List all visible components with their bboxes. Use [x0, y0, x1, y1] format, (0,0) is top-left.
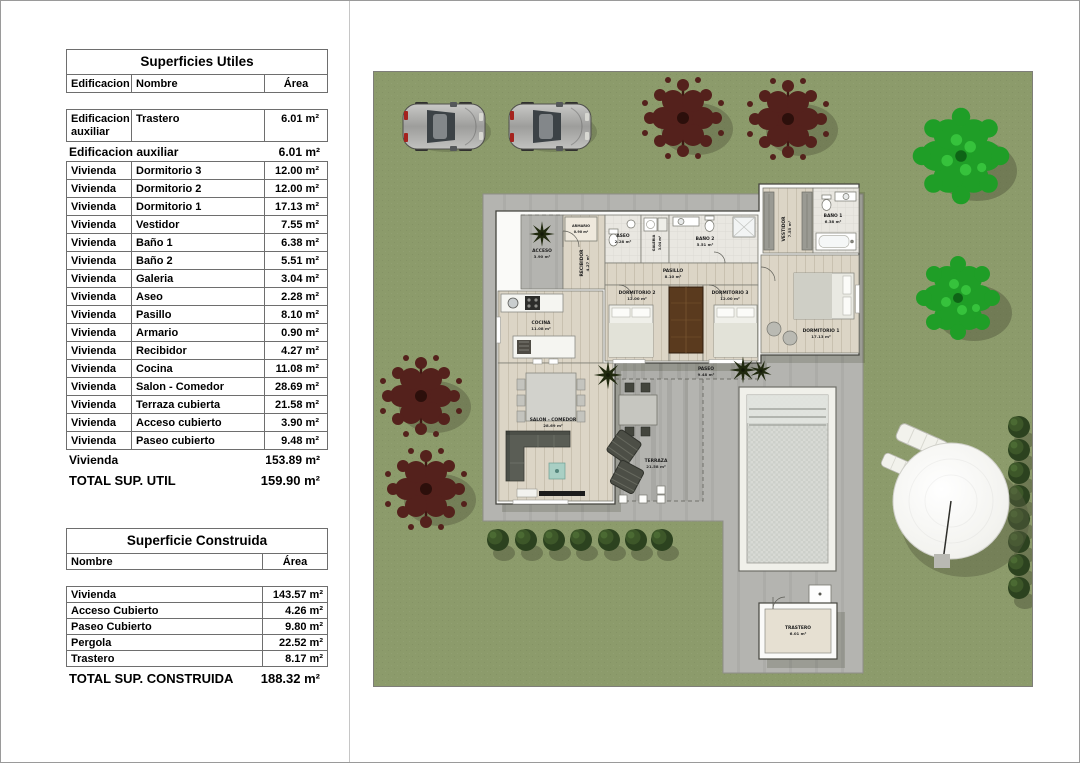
cell-nombre: Terraza cubierta — [132, 396, 265, 413]
room-area-trastero: 6.01 m² — [790, 631, 807, 636]
cell-nombre: Acceso Cubierto — [67, 603, 263, 618]
room-area-bano2: 5.51 m² — [697, 242, 714, 247]
cell-nombre: Salon - Comedor — [132, 378, 265, 395]
aux-subtotal-row: Edificacion auxiliar 6.01 m² — [66, 142, 328, 161]
cell-edificacion: Vivienda — [67, 234, 132, 251]
room-label-bano1: BAÑO 1 — [824, 212, 843, 219]
total-util-area: 159.90 m² — [261, 473, 320, 488]
table-row: Edificacion auxiliar Trastero 6.01 m² — [67, 110, 327, 141]
aux-building-table: Edificacion auxiliar Trastero 6.01 m² — [66, 109, 328, 142]
cell-area: 5.51 m² — [265, 252, 327, 269]
swimming-pool — [739, 387, 836, 571]
table-row: Pergola22.52 m² — [67, 634, 327, 650]
table-row: ViviendaGaleria3.04 m² — [67, 269, 327, 287]
cell-nombre: Baño 2 — [132, 252, 265, 269]
cell-edificacion: Vivienda — [67, 360, 132, 377]
cell-nombre: Vivienda — [67, 587, 263, 602]
room-area-dormitorio3: 12.00 m² — [720, 296, 740, 301]
total-construida-area: 188.32 m² — [261, 671, 320, 686]
cell-nombre: Trastero — [67, 651, 263, 666]
room-area-acceso: 3.90 m² — [534, 254, 551, 259]
car-icon — [403, 102, 491, 152]
built-surface-title: Superficie Construida — [66, 528, 328, 554]
page-background: Superficies Utiles Edificacion Nombre Ár… — [0, 0, 1080, 763]
cell-area: 28.69 m² — [265, 378, 327, 395]
cell-edificacion: Edificacion auxiliar — [67, 110, 132, 141]
bed-dormitorio2 — [609, 305, 653, 357]
cell-edificacion: Vivienda — [67, 378, 132, 395]
cell-nombre: Paseo cubierto — [132, 432, 265, 449]
cell-edificacion: Vivienda — [67, 162, 132, 179]
table-row: ViviendaArmario0.90 m² — [67, 323, 327, 341]
aux-subtotal-area: 6.01 m² — [279, 145, 320, 159]
built-surface-rows: Vivienda143.57 m² Acceso Cubierto4.26 m²… — [66, 586, 328, 667]
room-pasillo — [605, 263, 758, 285]
cell-area: 22.52 m² — [263, 635, 327, 650]
armchair-icon — [783, 331, 797, 345]
dining-table — [526, 373, 576, 421]
kitchen-sink — [508, 298, 518, 308]
cell-area: 0.90 m² — [265, 324, 327, 341]
outdoor-table — [619, 395, 657, 425]
cell-area: 21.58 m² — [265, 396, 327, 413]
cell-nombre: Pasillo — [132, 306, 265, 323]
armchair-icon — [767, 322, 781, 336]
cell-nombre: Vestidor — [132, 216, 265, 233]
cell-nombre: Baño 1 — [132, 234, 265, 251]
table-row: ViviendaVestidor7.55 m² — [67, 215, 327, 233]
useful-surfaces-title: Superficies Utiles — [66, 49, 328, 75]
cell-area: 6.38 m² — [265, 234, 327, 251]
stove — [525, 296, 540, 310]
room-area-cocina: 11.08 m² — [531, 326, 551, 331]
aux-subtotal-label: Edificacion auxiliar — [69, 145, 178, 159]
toilet-icon — [822, 200, 831, 211]
vivienda-subtotal-area: 153.89 m² — [265, 453, 320, 467]
room-area-pasillo: 8.10 m² — [665, 274, 682, 279]
cell-nombre: Recibidor — [132, 342, 265, 359]
col-nombre: Nombre — [67, 554, 263, 569]
table-row: ViviendaRecibidor4.27 m² — [67, 341, 327, 359]
col-nombre: Nombre — [132, 75, 265, 92]
agave-plant-icon — [529, 221, 555, 247]
site-plan: ACCESO 3.90 m² RECIBIDOR 4.27 m² ARMARIO… — [373, 71, 1033, 687]
agave-plant-icon — [730, 357, 757, 384]
table-row: ViviendaBaño 25.51 m² — [67, 251, 327, 269]
total-util-label: TOTAL SUP. UTIL — [69, 473, 176, 488]
cell-edificacion: Vivienda — [67, 270, 132, 287]
vivienda-subtotal-label: Vivienda — [69, 453, 118, 467]
table-row: ViviendaDormitorio 117.13 m² — [67, 197, 327, 215]
car-icon — [509, 102, 597, 152]
total-util-row: TOTAL SUP. UTIL 159.90 m² — [66, 469, 328, 490]
cell-edificacion: Vivienda — [67, 306, 132, 323]
table-row: ViviendaTerraza cubierta21.58 m² — [67, 395, 327, 413]
agave-plant-icon — [594, 361, 623, 390]
bed-dormitorio3 — [714, 305, 757, 357]
cell-edificacion: Vivienda — [67, 252, 132, 269]
room-label-galeria: GALERIA — [652, 234, 656, 251]
table-row: Vivienda143.57 m² — [67, 587, 327, 602]
cell-area: 17.13 m² — [265, 198, 327, 215]
room-area-galeria: 3.04 m² — [658, 235, 662, 250]
cell-nombre: Trastero — [132, 110, 265, 141]
cell-nombre: Armario — [132, 324, 265, 341]
room-label-bano2: BAÑO 2 — [696, 235, 715, 242]
cell-edificacion: Vivienda — [67, 432, 132, 449]
cell-area: 8.17 m² — [263, 651, 327, 666]
cell-edificacion: Vivienda — [67, 396, 132, 413]
room-area-aseo: 2.28 m² — [615, 239, 632, 244]
cell-area: 4.27 m² — [265, 342, 327, 359]
col-area: Área — [263, 554, 327, 569]
toilet-icon — [705, 221, 714, 232]
tv-console — [517, 489, 537, 497]
cell-nombre: Pergola — [67, 635, 263, 650]
cell-area: 3.04 m² — [265, 270, 327, 287]
cell-nombre: Galeria — [132, 270, 265, 287]
cell-area: 4.26 m² — [263, 603, 327, 618]
cell-area: 7.55 m² — [265, 216, 327, 233]
room-area-dormitorio2: 12.00 m² — [627, 296, 647, 301]
table-row: ViviendaCocina11.08 m² — [67, 359, 327, 377]
useful-surfaces-header: Edificacion Nombre Área — [66, 75, 328, 93]
cell-edificacion: Vivienda — [67, 180, 132, 197]
table-row: ViviendaDormitorio 312.00 m² — [67, 162, 327, 179]
cell-nombre: Dormitorio 2 — [132, 180, 265, 197]
table-row: Trastero8.17 m² — [67, 650, 327, 666]
tv — [539, 491, 585, 496]
cell-area: 143.57 m² — [263, 587, 327, 602]
cell-area: 9.48 m² — [265, 432, 327, 449]
cell-edificacion: Vivienda — [67, 414, 132, 431]
room-area-vestidor: 7.55 m² — [787, 220, 792, 237]
table-row: ViviendaSalon - Comedor28.69 m² — [67, 377, 327, 395]
room-area-salon: 28.69 m² — [543, 423, 563, 428]
built-surface-table: Superficie Construida Nombre Área Vivien… — [66, 528, 328, 688]
vivienda-rooms-table: ViviendaDormitorio 312.00 m² ViviendaDor… — [66, 161, 328, 450]
total-construida-row: TOTAL SUP. CONSTRUIDA 188.32 m² — [66, 667, 328, 688]
cell-edificacion: Vivienda — [67, 198, 132, 215]
cell-nombre: Cocina — [132, 360, 265, 377]
wardrobe — [669, 287, 703, 353]
cell-edificacion: Vivienda — [67, 342, 132, 359]
cell-area: 6.01 m² — [265, 110, 327, 141]
total-construida-label: TOTAL SUP. CONSTRUIDA — [69, 671, 233, 686]
cell-area: 3.90 m² — [265, 414, 327, 431]
room-area-terraza: 21.58 m² — [646, 464, 666, 469]
built-surface-header: Nombre Área — [66, 554, 328, 570]
cell-nombre: Acceso cubierto — [132, 414, 265, 431]
cell-edificacion: Vivienda — [67, 216, 132, 233]
cell-area: 9.80 m² — [263, 619, 327, 634]
closet-armario — [565, 217, 597, 241]
room-area-paseo: 9.48 m² — [698, 372, 715, 377]
cell-nombre: Aseo — [132, 288, 265, 305]
room-area-bano1: 6.38 m² — [825, 219, 842, 224]
table-row: ViviendaPaseo cubierto9.48 m² — [67, 431, 327, 449]
table-row: ViviendaAcceso cubierto3.90 m² — [67, 413, 327, 431]
cell-nombre: Dormitorio 3 — [132, 162, 265, 179]
cell-area: 11.08 m² — [265, 360, 327, 377]
cell-area: 12.00 m² — [265, 180, 327, 197]
vivienda-subtotal-row: Vivienda 153.89 m² — [66, 450, 328, 469]
cell-nombre: Paseo Cubierto — [67, 619, 263, 634]
table-row: Paseo Cubierto9.80 m² — [67, 618, 327, 634]
sink-icon — [627, 220, 635, 228]
room-label-armario: ARMARIO — [572, 224, 590, 228]
table-row: ViviendaDormitorio 212.00 m² — [67, 179, 327, 197]
room-area-dormitorio1: 17.13 m² — [811, 334, 831, 339]
table-row: ViviendaPasillo8.10 m² — [67, 305, 327, 323]
table-row: ViviendaAseo2.28 m² — [67, 287, 327, 305]
useful-surfaces-table: Superficies Utiles Edificacion Nombre Ár… — [66, 49, 328, 490]
col-edificacion: Edificacion — [67, 75, 132, 92]
cell-nombre: Dormitorio 1 — [132, 198, 265, 215]
cell-area: 8.10 m² — [265, 306, 327, 323]
table-row: ViviendaBaño 16.38 m² — [67, 233, 327, 251]
parasol-base — [934, 554, 950, 568]
panel-divider — [349, 1, 350, 763]
col-area: Área — [265, 75, 327, 92]
table-row: Acceso Cubierto4.26 m² — [67, 602, 327, 618]
room-area-recibidor: 4.27 m² — [585, 254, 590, 271]
cell-edificacion: Vivienda — [67, 324, 132, 341]
washer-icon — [644, 218, 657, 231]
cell-area: 2.28 m² — [265, 288, 327, 305]
room-area-armario: 0.90 m² — [574, 230, 589, 234]
cell-area: 12.00 m² — [265, 162, 327, 179]
cell-edificacion: Vivienda — [67, 288, 132, 305]
